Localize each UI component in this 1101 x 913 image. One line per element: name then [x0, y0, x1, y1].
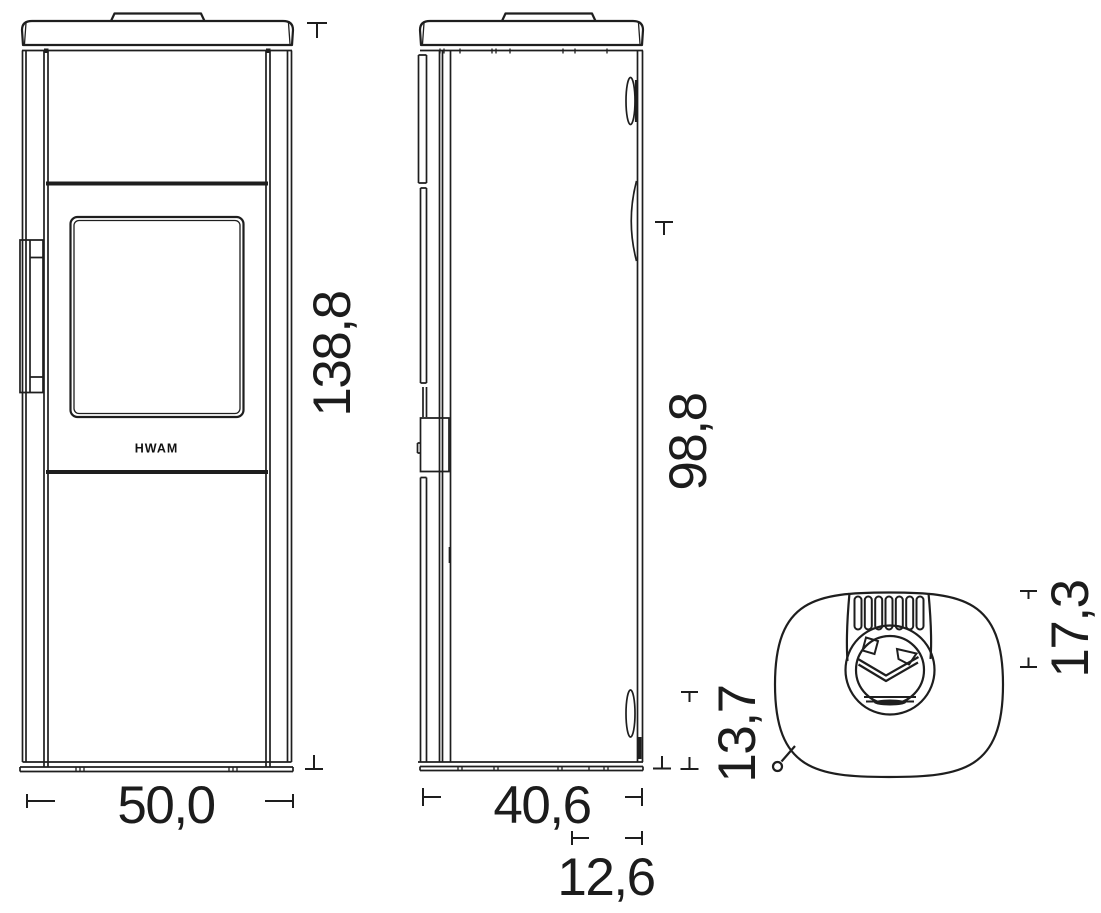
- flue-damper-chevron: [858, 657, 919, 681]
- flue-damper-tab: [897, 649, 917, 665]
- front-view: HWAM: [20, 14, 293, 772]
- brand-logo: HWAM: [135, 442, 179, 456]
- dim-front-height-label: 138,8: [303, 291, 362, 416]
- front-top-riser: [111, 14, 205, 22]
- dim-top-flue-ticks: [1020, 591, 1037, 667]
- dim-side-lower-label: 13,7: [708, 685, 767, 782]
- front-panel-joint-left: [44, 49, 49, 54]
- side-top-plate-edges: [423, 23, 641, 44]
- side-top-plate: [420, 21, 643, 45]
- side-base-plate: [420, 767, 643, 771]
- grille-slot: [855, 597, 862, 630]
- side-top-riser: [502, 14, 596, 22]
- dim-side-height-label: 98,8: [659, 393, 718, 490]
- stove-drawing: HWAM: [0, 0, 1101, 913]
- grille-slot: [896, 597, 903, 630]
- front-glass-outer: [71, 217, 244, 417]
- grille-slot: [875, 597, 882, 630]
- top-view: [773, 593, 1003, 778]
- front-top-plate: [22, 21, 293, 45]
- flue-damper-shadow: [874, 700, 906, 706]
- top-body-outline: [775, 593, 1003, 778]
- grille-slot: [906, 597, 913, 630]
- front-base-plate: [20, 762, 293, 772]
- dim-side-depth-label: 40,6: [493, 776, 590, 835]
- side-rear-slot-bottom: [626, 690, 635, 737]
- front-panel-joint-right: [266, 49, 271, 54]
- side-body-lines: [418, 51, 643, 763]
- dim-side-offset-label: 12,6: [557, 848, 654, 907]
- dimension-drawing-canvas: HWAM: [0, 0, 1101, 913]
- side-view: [418, 14, 644, 771]
- front-top-plate-edges: [25, 23, 291, 44]
- dim-front-width-label: 50,0: [117, 776, 214, 835]
- dim-side-height-ticks: [653, 222, 673, 769]
- side-door-edge: [418, 55, 450, 762]
- dim-side-lower-ticks: [681, 692, 699, 769]
- front-body-lines: [22, 51, 292, 763]
- side-rear-slot-top: [626, 78, 635, 125]
- side-rear-curve: [631, 181, 636, 261]
- front-glass-inner: [74, 221, 240, 414]
- front-hinge: [20, 240, 43, 393]
- dim-top-flue-label: 17,3: [1041, 580, 1100, 677]
- top-handle-knob: [773, 762, 782, 771]
- grille-slot: [917, 597, 924, 630]
- grille-slot: [865, 597, 872, 630]
